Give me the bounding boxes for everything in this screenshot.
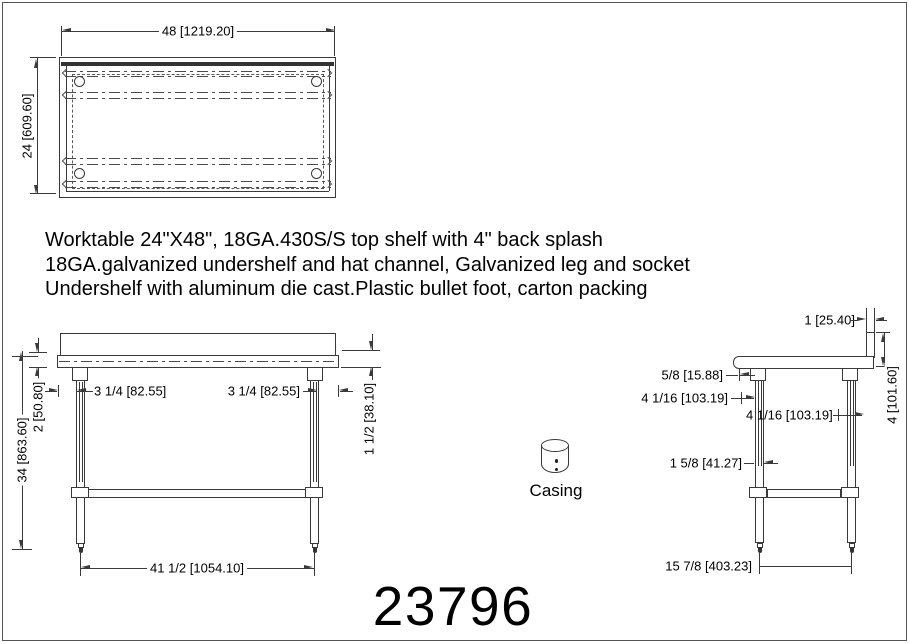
part-number: 23796 bbox=[353, 574, 553, 638]
cylinder-top bbox=[541, 439, 569, 452]
casing-label: Casing bbox=[527, 481, 586, 501]
rivet-dot bbox=[555, 459, 559, 463]
casing-icon: Casing bbox=[0, 0, 910, 644]
rivet-dot bbox=[555, 468, 559, 472]
drawing-sheet: 48 [1219.20] 24 [609.60] Worktable 24"X4… bbox=[0, 0, 910, 644]
